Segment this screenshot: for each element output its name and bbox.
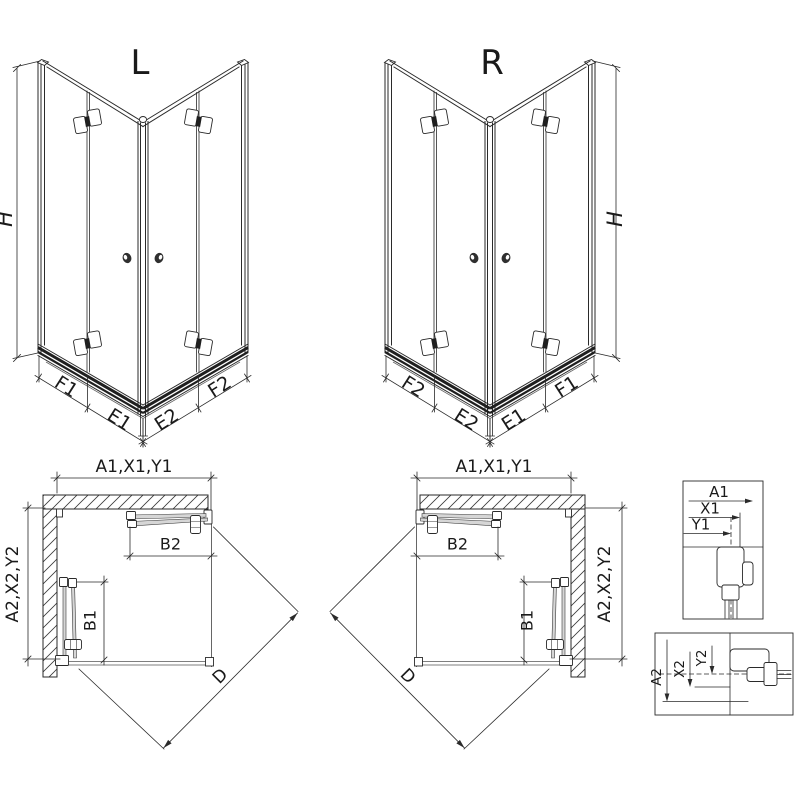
wall-hatch-side (571, 509, 585, 677)
variant-label-left: L (131, 43, 150, 83)
dim-label-y2: Y2 (694, 650, 710, 668)
shower-enclosure-technical-drawing: L H F1 E1 E2 F2 R H F2 E2 E1 F1 A1,X1,Y1… (0, 0, 800, 800)
dim-label-b2: B2 (160, 535, 181, 554)
dim-label-width: A1,X1,Y1 (96, 457, 173, 477)
wall-hatch-side (43, 509, 57, 677)
dim-label-b2: B2 (447, 535, 468, 554)
dim-label-a1: A1 (709, 483, 729, 501)
variant-label-right: R (480, 43, 504, 83)
plan-view-left: A1,X1,Y1 A2,X2,Y2 B2 B1 D (3, 457, 298, 749)
profile-bracket (764, 663, 777, 686)
dim-label-a2: A2 (649, 668, 665, 686)
dim-label-f1: F1 (551, 371, 582, 402)
iso-view-left: L H F1 E1 E2 F2 (0, 43, 251, 447)
detail-box-width: A1 X1 Y1 (683, 481, 763, 619)
profile-bracket (743, 562, 754, 585)
drawing-canvas: L H F1 E1 E2 F2 R H F2 E2 E1 F1 A1,X1,Y1… (0, 0, 800, 800)
iso-view-right: R H F2 E2 E1 F1 (382, 43, 627, 447)
dim-label-x2: X2 (672, 660, 688, 678)
wall-hatch-top (43, 495, 208, 509)
dim-label-f1: F1 (51, 371, 82, 402)
detail-box-depth: A2 X2 Y2 (649, 633, 793, 715)
dim-label-b1: B1 (81, 610, 100, 631)
dim-label-diagonal: D (396, 665, 419, 688)
wall-hatch-top (420, 495, 585, 509)
dim-label-depth: A2,X2,Y2 (595, 546, 615, 623)
wall-profile-section (717, 547, 744, 587)
dim-label-f2: F2 (204, 371, 235, 402)
dim-label-width: A1,X1,Y1 (456, 457, 533, 477)
plan-view-right: A1,X1,Y1 A2,X2,Y2 B2 B1 D (330, 457, 627, 749)
dim-label-y1: Y1 (691, 516, 711, 534)
dim-label-diagonal: D (209, 665, 232, 688)
dim-label-height: H (0, 211, 17, 227)
dim-label-height: H (603, 211, 627, 227)
dim-label-depth: A2,X2,Y2 (3, 546, 23, 623)
dim-label-f2: F2 (398, 371, 429, 402)
dim-label-b1: B1 (518, 610, 537, 631)
